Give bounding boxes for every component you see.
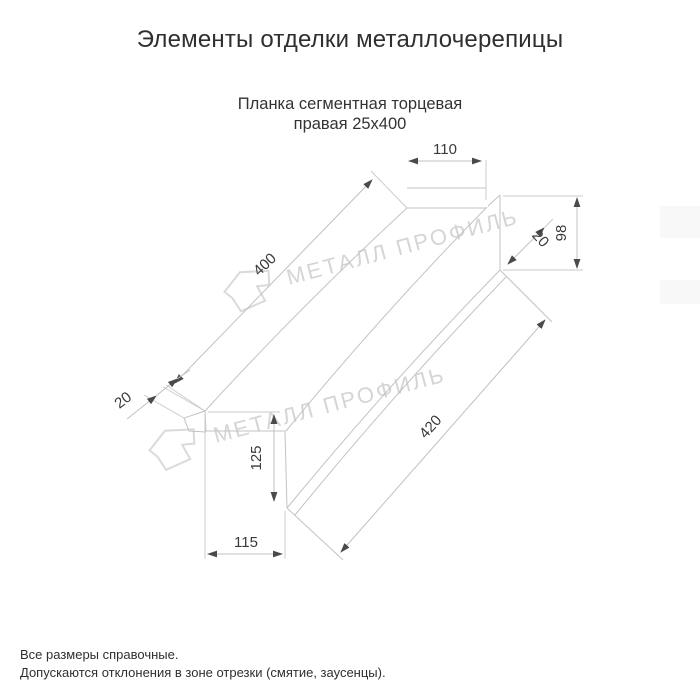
technical-drawing-page: Элементы отделки металлочерепицы Планка … <box>0 0 700 700</box>
watermark-text: МЕТАЛЛ ПРОФИЛЬ <box>211 362 449 448</box>
edge-artifact <box>660 206 700 238</box>
dimension-label-400: 400 <box>250 250 280 280</box>
part-subtitle: Планка сегментная торцевая правая 25х400 <box>0 94 700 134</box>
footer-notes: Все размеры справочные. Допускаются откл… <box>20 646 386 682</box>
watermark-text: МЕТАЛЛ ПРОФИЛЬ <box>284 204 522 290</box>
dimension-label-20-right: 20 <box>528 227 552 251</box>
dimension-110: 110 <box>409 141 486 200</box>
dimension-20-left: 20 <box>111 370 205 419</box>
edge-artifact <box>660 280 700 304</box>
dimension-label-420: 420 <box>416 412 445 442</box>
dimension-label-20-left: 20 <box>111 389 135 413</box>
dimension-label-125: 125 <box>248 445 265 470</box>
dimension-label-110: 110 <box>433 141 457 158</box>
dimension-label-115: 115 <box>234 534 258 551</box>
dimension-400: 400 <box>166 171 407 411</box>
dimension-label-98: 98 <box>553 225 570 242</box>
part-name-line1: Планка сегментная торцевая <box>0 94 700 114</box>
page-title: Элементы отделки металлочерепицы <box>0 26 700 54</box>
footer-note-2: Допускаются отклонения в зоне отрезки (с… <box>20 664 386 682</box>
footer-note-1: Все размеры справочные. <box>20 646 386 664</box>
dimension-420: 420 <box>341 320 545 552</box>
part-name-line2: правая 25х400 <box>0 114 700 134</box>
watermark-lower: МЕТАЛЛ ПРОФИЛЬ <box>146 357 451 473</box>
